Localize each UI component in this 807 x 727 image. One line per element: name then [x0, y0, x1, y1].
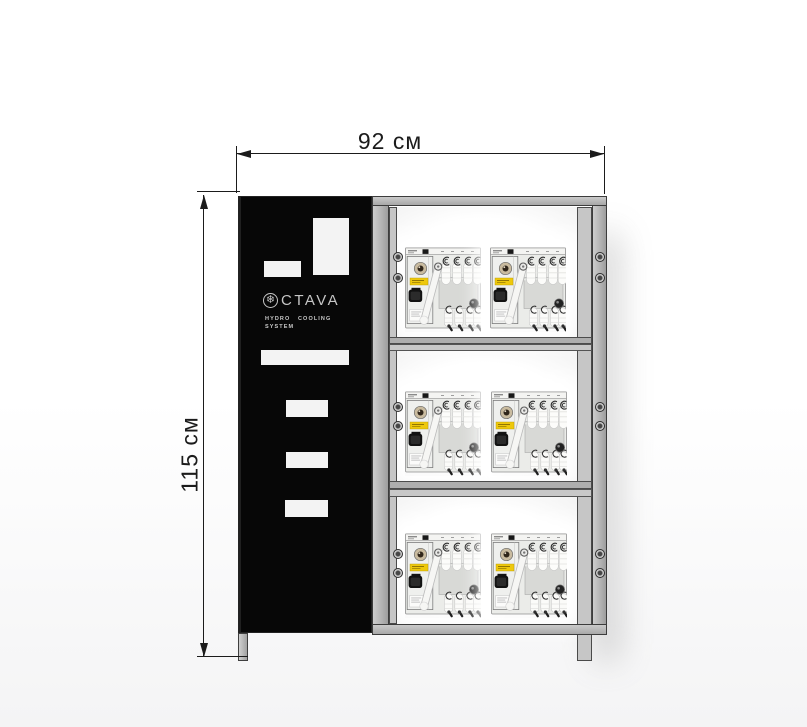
rack-right-rail-leg: [577, 207, 592, 661]
screw-icon: [393, 549, 403, 559]
snowflake-icon: ❄: [263, 293, 278, 308]
panel-cutout-wide: [261, 350, 349, 365]
screw-icon: [393, 252, 403, 262]
arrow-down-icon: [200, 643, 208, 657]
shelf-divider-1-top: [389, 337, 592, 344]
screw-icon: [393, 568, 403, 578]
cooling-unit-r2-c1: [405, 391, 481, 476]
screw-icon: [393, 402, 403, 412]
screw-icon: [595, 273, 605, 283]
cooling-unit-r1-c2: [490, 247, 566, 332]
front-panel: ❄ CTAVA HYDRO COOLING SYSTEM: [238, 196, 372, 633]
panel-cutout-slot-3: [285, 500, 328, 517]
arrow-right-icon: [590, 150, 604, 158]
panel-cutout-tall: [313, 218, 349, 275]
screw-icon: [393, 421, 403, 431]
screw-icon: [595, 402, 605, 412]
shelf-divider-2-top: [389, 481, 592, 489]
rack-left-rail: [389, 207, 397, 624]
panel-cutout-small-top: [264, 261, 301, 277]
extension-line-bottom: [197, 656, 248, 657]
screw-icon: [595, 568, 605, 578]
brand-tagline-line1: HYDRO COOLING: [265, 316, 331, 322]
screw-icon: [595, 421, 605, 431]
cooling-unit-r3-c2: [491, 533, 567, 618]
shelf-divider-2-bottom: [389, 489, 592, 497]
brand-logo: ❄ CTAVA: [263, 292, 340, 309]
screw-icon: [393, 273, 403, 283]
cooling-unit-r3-c1: [405, 533, 481, 618]
panel-cutout-slot-1: [286, 400, 328, 417]
extension-line-left: [236, 146, 237, 193]
arrow-left-icon: [237, 150, 251, 158]
extension-line-top: [197, 191, 240, 192]
rack-top-bar: [372, 196, 607, 206]
cooling-unit-r2-c2: [491, 391, 567, 476]
screw-icon: [595, 549, 605, 559]
rack-left-post: [372, 196, 389, 635]
brand-tagline-line2: SYSTEM: [265, 324, 294, 330]
cooling-unit-r1-c1: [405, 247, 481, 332]
height-dimension-label: 115 см: [177, 395, 204, 515]
width-dimension-label: 92 см: [330, 128, 450, 155]
width-dimension-line: [237, 153, 604, 154]
height-dimension-line: [203, 195, 204, 657]
shelf-divider-1-bottom: [389, 344, 592, 351]
panel-cutout-slot-2: [286, 452, 328, 468]
technical-drawing: ❄ CTAVA HYDRO COOLING SYSTEM 92 см 115 с…: [0, 0, 807, 727]
arrow-up-icon: [200, 195, 208, 209]
rack-bottom-bar: [372, 624, 607, 635]
screw-icon: [595, 252, 605, 262]
brand-name: CTAVA: [281, 292, 340, 309]
extension-line-right: [604, 146, 605, 194]
